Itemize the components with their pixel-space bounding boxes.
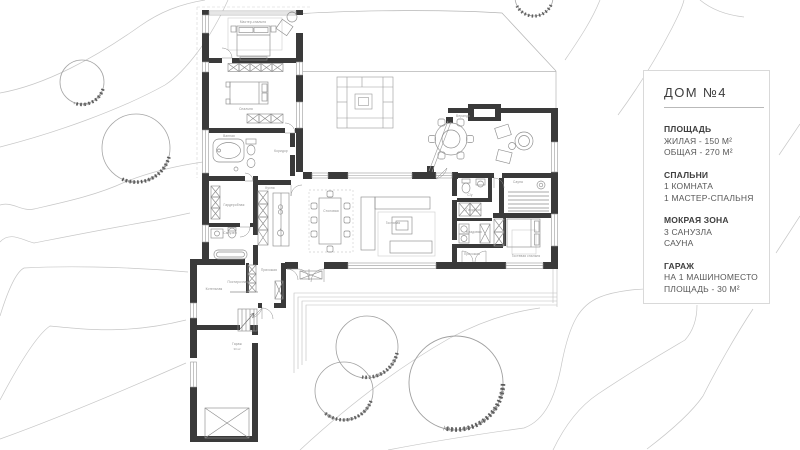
wardrobe-row2	[247, 114, 283, 123]
toilet	[246, 139, 256, 155]
panel-title-underline	[664, 107, 764, 108]
panel-section-garage: ГАРАЖ НА 1 МАШИНОМЕСТО ПЛОЩАДЬ - 30 М²	[664, 261, 761, 296]
guest-bed	[507, 219, 540, 254]
sauna-benches	[508, 181, 549, 211]
room-label: Котельная	[206, 287, 223, 291]
wardrobe-row	[228, 64, 283, 72]
room-label: Постирочная	[228, 280, 249, 284]
panel-title: ДОМ №4	[664, 85, 761, 100]
tree	[60, 60, 104, 104]
section-heading: СПАЛЬНИ	[664, 170, 761, 182]
dining-set	[309, 190, 353, 252]
room-label: Гараж	[232, 342, 242, 346]
veranda-glazing	[429, 121, 451, 172]
section-line: ЖИЛАЯ - 150 М²	[664, 136, 761, 148]
section-line: ПЛОЩАДЬ - 30 М²	[664, 284, 761, 296]
trees	[60, 0, 553, 430]
towel-ring	[234, 167, 238, 171]
section-heading: МОКРАЯ ЗОНА	[664, 215, 761, 227]
bathtub	[213, 139, 244, 162]
veranda-lounge	[495, 124, 533, 163]
south-terrace	[294, 269, 557, 373]
tree	[515, 0, 553, 16]
entry-mat	[300, 271, 322, 279]
room-label: Прихожая	[261, 268, 277, 272]
panel-section-wet-zone: МОКРАЯ ЗОНА 3 САНУЗЛА САУНА	[664, 215, 761, 250]
section-line: НА 1 МАШИНОМЕСТО	[664, 272, 761, 284]
room-label: Веранда	[456, 114, 470, 118]
kitchen-island	[273, 193, 289, 246]
bidet	[247, 159, 255, 168]
section-line: САУНА	[664, 238, 761, 250]
room-label-area: 30 м²	[234, 347, 241, 351]
room-label: Ванная	[223, 134, 235, 138]
room-label: Кухня	[265, 186, 274, 190]
living-sofa	[361, 197, 435, 256]
room-label: Гардероб	[466, 208, 481, 212]
room-label: Столовая	[323, 209, 339, 213]
room-label: С/у	[467, 193, 472, 197]
fireplace	[474, 109, 495, 117]
room-label: Гостевая спальня	[512, 254, 541, 258]
master-bed	[228, 18, 282, 60]
room-label: Сауна	[513, 180, 523, 184]
entry-steps	[238, 309, 257, 331]
room-label: Гардеробная	[224, 203, 245, 207]
room-label: Санузел	[223, 231, 236, 235]
info-panel: ДОМ №4 ПЛОЩАДЬ ЖИЛАЯ - 150 М² ОБЩАЯ - 27…	[643, 70, 770, 304]
room-label: Прихожая	[464, 252, 480, 256]
outdoor-lounge-sofa	[337, 77, 393, 128]
section-line: 1 МАСТЕР-СПАЛЬНЯ	[664, 193, 761, 205]
closet-units	[211, 186, 220, 219]
lounge-chair	[276, 12, 297, 36]
section-heading: ГАРАЖ	[664, 261, 761, 273]
page: { "info_panel": { "title": "ДОМ №4", "se…	[0, 0, 800, 450]
parking-space	[205, 408, 249, 438]
panel-section-bedrooms: СПАЛЬНИ 1 КОМНАТА 1 МАСТЕР-СПАЛЬНЯ	[664, 170, 761, 205]
guest-closet	[494, 219, 504, 246]
roof-overhang	[197, 7, 310, 178]
bed2	[226, 82, 268, 104]
section-line: ОБЩАЯ - 270 М²	[664, 147, 761, 159]
veranda-table	[429, 119, 474, 159]
room-label: Мастер-спальня	[240, 20, 266, 24]
bath3-fixtures	[462, 179, 485, 193]
tree	[409, 336, 503, 430]
kitchen-tall-units	[258, 191, 268, 245]
section-line: 1 КОМНАТА	[664, 181, 761, 193]
room-label: Кладовая	[466, 230, 482, 234]
section-line: 3 САНУЗЛА	[664, 227, 761, 239]
boiler-units	[230, 265, 258, 292]
panel-section-area: ПЛОЩАДЬ ЖИЛАЯ - 150 М² ОБЩАЯ - 270 М²	[664, 124, 761, 159]
tree	[336, 316, 398, 378]
section-heading: ПЛОЩАДЬ	[664, 124, 761, 136]
room-label: Коридор	[274, 149, 288, 153]
room-label: Гостиная	[386, 221, 401, 225]
tree	[102, 114, 170, 182]
room-label: Спальня	[239, 107, 253, 111]
